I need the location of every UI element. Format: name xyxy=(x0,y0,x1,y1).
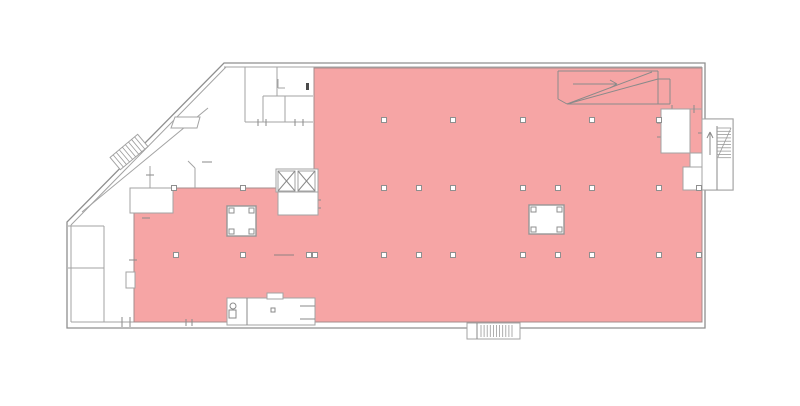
highlight-region[interactable] xyxy=(134,68,702,322)
vestibule-notch xyxy=(267,293,283,299)
floor-plan-canvas: Building floor plan with highlighted let… xyxy=(0,0,800,406)
stair-bottom xyxy=(467,323,520,339)
room-top-right-white xyxy=(661,109,690,153)
room-left-white xyxy=(130,188,173,213)
left-wall-notch xyxy=(126,272,135,288)
right-wall-patch-upper xyxy=(690,153,702,167)
stair-right xyxy=(702,119,733,190)
floor-plan-drawing: Building floor plan with highlighted let… xyxy=(0,0,800,406)
elevators xyxy=(276,169,318,215)
